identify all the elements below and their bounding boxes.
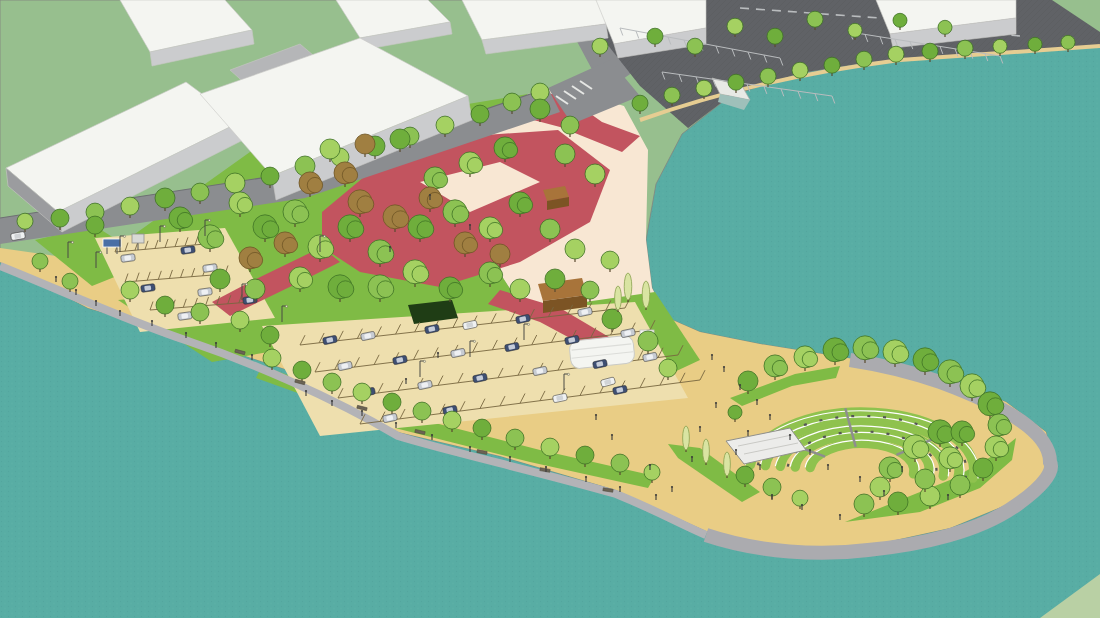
car-roof xyxy=(184,247,191,252)
person-head xyxy=(789,434,791,436)
lamp-head xyxy=(527,323,529,325)
person-head xyxy=(901,466,903,468)
tree-crown-lobe xyxy=(892,346,909,363)
person-head xyxy=(405,378,407,380)
tree-crown xyxy=(320,139,340,159)
tree-crown xyxy=(993,39,1007,53)
car-roof xyxy=(144,285,151,290)
tree-crown-lobe xyxy=(487,222,502,237)
person-head xyxy=(95,300,97,302)
tree-crown xyxy=(503,93,521,111)
tree-crown-lobe xyxy=(502,142,517,157)
tree-crown-lobe xyxy=(996,419,1011,434)
tree-crown xyxy=(856,51,872,67)
tree-crown xyxy=(261,326,279,344)
tree-crown-lobe xyxy=(377,246,394,263)
tree-crown-lobe xyxy=(347,221,364,238)
tree-crown-lobe xyxy=(802,351,817,366)
person-head xyxy=(331,400,333,402)
tree-crown xyxy=(555,144,575,164)
tree-crown xyxy=(763,478,781,496)
person-head xyxy=(859,476,861,478)
person-head xyxy=(671,486,673,488)
person-head xyxy=(361,410,363,412)
tree-crown xyxy=(659,359,677,377)
tree-crown xyxy=(938,20,952,34)
tree-crown xyxy=(760,68,776,84)
tree-crown-lobe xyxy=(462,237,477,252)
tree-crown xyxy=(245,279,265,299)
tree-crown-lobe xyxy=(237,197,252,212)
tree-crown xyxy=(293,361,311,379)
tree-crown xyxy=(541,438,559,456)
tree-crown-lobe xyxy=(357,196,374,213)
person-head xyxy=(151,320,153,322)
poplar-crown xyxy=(615,286,622,310)
lamp-head xyxy=(123,235,125,237)
tree-crown xyxy=(854,494,874,514)
person-head xyxy=(769,414,771,416)
tree-crown xyxy=(950,475,970,495)
tree-crown xyxy=(51,209,69,227)
person-head xyxy=(759,464,761,466)
person-head xyxy=(119,310,121,312)
tree-crown xyxy=(540,219,560,239)
tree-crown xyxy=(1061,35,1075,49)
poplar-crown xyxy=(724,452,731,476)
person-head xyxy=(739,384,741,386)
tree-crown xyxy=(581,281,599,299)
tree-crown xyxy=(490,244,510,264)
lamp-head xyxy=(99,251,101,253)
tree-crown xyxy=(225,173,245,193)
tree-crown xyxy=(530,99,550,119)
tree-crown xyxy=(870,477,890,497)
tree-crown-lobe xyxy=(517,197,532,212)
tree-crown xyxy=(647,28,663,44)
tree-crown xyxy=(121,281,139,299)
tree-crown xyxy=(767,28,783,44)
tree-crown xyxy=(736,466,754,484)
car-roof xyxy=(124,255,131,260)
tree-crown-lobe xyxy=(377,281,394,298)
person-head xyxy=(771,494,773,496)
person-head xyxy=(756,399,758,401)
tree-crown xyxy=(824,57,840,73)
person-head xyxy=(827,464,829,466)
tree-crown-lobe xyxy=(887,462,902,477)
tree-crown-lobe xyxy=(292,206,309,223)
tree-crown xyxy=(687,38,703,54)
tree-crown xyxy=(17,213,33,229)
tree-crown-lobe xyxy=(412,266,429,283)
tree-crown xyxy=(792,62,808,78)
tree-crown xyxy=(191,303,209,321)
tree-crown-lobe xyxy=(262,221,279,238)
site-plan-rendering xyxy=(0,0,1100,618)
tree-crown xyxy=(323,373,341,391)
person-head xyxy=(699,426,701,428)
person-head xyxy=(545,466,547,468)
scene-canvas xyxy=(0,0,1100,618)
tree-crown xyxy=(915,469,935,489)
tree-crown xyxy=(32,253,48,269)
tree-crown xyxy=(888,492,908,512)
tree-crown-lobe xyxy=(282,237,297,252)
tree-crown-lobe xyxy=(772,360,787,375)
tree-crown-lobe xyxy=(987,398,1004,415)
tree-crown xyxy=(664,87,680,103)
tree-crown xyxy=(807,11,823,27)
tree-crown xyxy=(210,269,230,289)
tree-crown xyxy=(355,134,375,154)
person-head xyxy=(585,476,587,478)
tree-crown-lobe xyxy=(297,272,312,287)
tree-crown xyxy=(506,429,524,447)
tree-crown xyxy=(585,164,605,184)
tree-crown xyxy=(696,80,712,96)
tree-crown xyxy=(545,269,565,289)
tree-crown-lobe xyxy=(947,452,962,467)
person-head xyxy=(429,194,431,196)
lamp-head xyxy=(323,235,325,237)
person-head xyxy=(215,342,217,344)
person-head xyxy=(469,446,471,448)
car-roof xyxy=(181,313,188,318)
tree-crown xyxy=(728,74,744,90)
tree-crown xyxy=(638,331,658,351)
person-head xyxy=(185,332,187,334)
person-head xyxy=(839,514,841,516)
poplar-crown xyxy=(683,426,690,450)
lamp-head xyxy=(163,225,165,227)
person-head xyxy=(389,246,391,248)
person-head xyxy=(75,289,77,291)
tree-crown-lobe xyxy=(912,441,929,458)
lamp-head xyxy=(245,283,247,285)
tree-crown xyxy=(893,13,907,27)
person-head xyxy=(747,430,749,432)
tree-crown xyxy=(383,393,401,411)
person-head xyxy=(655,494,657,496)
person-head xyxy=(395,422,397,424)
person-head xyxy=(801,504,803,506)
tree-crown xyxy=(888,46,904,62)
tree-crown xyxy=(473,419,491,437)
tree-crown xyxy=(531,83,549,101)
tree-crown xyxy=(576,446,594,464)
lamp-head xyxy=(208,219,210,221)
tree-crown-lobe xyxy=(342,167,357,182)
tree-crown xyxy=(602,309,622,329)
person-head xyxy=(55,276,57,278)
tree-crown xyxy=(592,38,608,54)
tree-crown-lobe xyxy=(447,282,462,297)
tree-crown-lobe xyxy=(452,206,469,223)
tree-crown xyxy=(62,273,78,289)
tree-crown xyxy=(413,402,431,420)
tree-crown xyxy=(738,371,758,391)
tree-crown-lobe xyxy=(862,342,879,359)
tree-crown xyxy=(973,458,993,478)
tree-crown-lobe xyxy=(337,281,354,298)
person-head xyxy=(611,434,613,436)
tree-crown xyxy=(848,23,862,37)
tree-crown-lobe xyxy=(832,344,849,361)
tree-crown xyxy=(471,105,489,123)
tree-crown-lobe xyxy=(247,252,262,267)
car-roof xyxy=(201,289,208,294)
tree-crown xyxy=(611,454,629,472)
person-head xyxy=(883,490,885,492)
tree-crown-lobe xyxy=(177,212,192,227)
tree-crown-lobe xyxy=(417,221,434,238)
tree-crown xyxy=(436,116,454,134)
tree-crown xyxy=(957,40,973,56)
tree-crown-lobe xyxy=(207,231,224,248)
tree-crown-lobe xyxy=(307,177,322,192)
tree-crown xyxy=(155,188,175,208)
tree-crown xyxy=(156,296,174,314)
person-head xyxy=(691,456,693,458)
tree-crown xyxy=(443,411,461,429)
person-head xyxy=(711,354,713,356)
tree-crown xyxy=(644,464,660,480)
poplar-crown xyxy=(703,439,710,463)
tree-crown xyxy=(728,405,742,419)
tree-crown-lobe xyxy=(432,172,447,187)
tree-crown xyxy=(191,183,209,201)
lamp-head xyxy=(423,360,425,362)
person-head xyxy=(715,402,717,404)
tree-crown-lobe xyxy=(392,211,409,228)
person-head xyxy=(469,224,471,226)
tree-crown-lobe xyxy=(959,426,974,441)
person-head xyxy=(619,486,621,488)
tree-crown xyxy=(792,490,808,506)
tree-crown-lobe xyxy=(922,354,939,371)
tree-crown-lobe xyxy=(993,441,1008,456)
tree-crown xyxy=(263,349,281,367)
tree-crown xyxy=(121,197,139,215)
lamp-head xyxy=(71,241,73,243)
tree-crown xyxy=(922,43,938,59)
tree-crown xyxy=(353,383,371,401)
tree-crown xyxy=(601,251,619,269)
tree-crown xyxy=(561,116,579,134)
lamp-head xyxy=(285,305,287,307)
person-head xyxy=(437,352,439,354)
person-head xyxy=(509,456,511,458)
tree-crown-lobe xyxy=(487,267,502,282)
person-head xyxy=(947,494,949,496)
person-head xyxy=(251,354,253,356)
car-roof xyxy=(206,265,213,270)
tree-crown xyxy=(261,167,279,185)
person-head xyxy=(809,449,811,451)
lamp-head xyxy=(567,373,569,375)
person-head xyxy=(595,414,597,416)
person-head xyxy=(431,434,433,436)
poplar-crown xyxy=(642,281,650,308)
tree-crown-lobe xyxy=(467,157,482,172)
person-head xyxy=(735,449,737,451)
lamp-head xyxy=(473,340,475,342)
tree-crown xyxy=(1028,37,1042,51)
tree-crown xyxy=(231,311,249,329)
person-head xyxy=(305,390,307,392)
tree-crown xyxy=(390,129,410,149)
person-head xyxy=(649,464,651,466)
tree-crown xyxy=(510,279,530,299)
tree-crown xyxy=(632,95,648,111)
poplar-crown xyxy=(624,273,632,300)
person-head xyxy=(723,366,725,368)
tree-crown xyxy=(86,216,104,234)
tree-crown xyxy=(727,18,743,34)
tree-crown xyxy=(565,239,585,259)
